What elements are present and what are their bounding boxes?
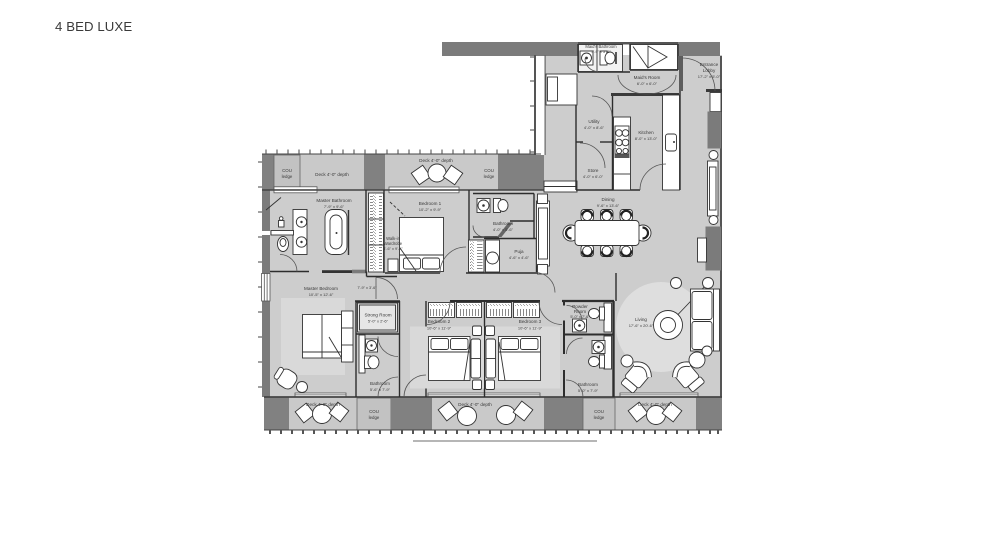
- svg-text:Entrance: Entrance: [700, 62, 719, 67]
- svg-text:Strong Room: Strong Room: [364, 313, 391, 318]
- svg-text:Kitchen: Kitchen: [638, 130, 654, 135]
- svg-text:4'-0" x 8'-6": 4'-0" x 8'-6": [584, 125, 605, 130]
- svg-text:5'-0" x 7'-6": 5'-0" x 7'-6": [570, 315, 590, 319]
- svg-text:Puja: Puja: [514, 249, 524, 254]
- svg-text:Maid's Room: Maid's Room: [634, 75, 661, 80]
- svg-text:COU: COU: [282, 168, 292, 173]
- svg-text:Master Bathroom: Master Bathroom: [316, 198, 351, 203]
- svg-text:Bedroom 3: Bedroom 3: [519, 319, 542, 324]
- svg-text:7'-9" x 3'-6": 7'-9" x 3'-6": [357, 286, 377, 290]
- svg-text:ledge: ledge: [594, 415, 605, 420]
- svg-text:COU: COU: [484, 168, 494, 173]
- svg-text:Lobby: Lobby: [703, 68, 716, 73]
- svg-text:Utility: Utility: [588, 119, 600, 124]
- svg-text:Master Bedroom: Master Bedroom: [304, 286, 338, 291]
- svg-text:Bathroom: Bathroom: [493, 221, 513, 226]
- svg-text:4'-6" x 9'-6": 4'-6" x 9'-6": [383, 247, 403, 251]
- svg-text:5'-0" x 7'-9": 5'-0" x 7'-9": [578, 388, 599, 393]
- svg-text:10'-6" x 11'-9": 10'-6" x 11'-9": [427, 326, 452, 331]
- svg-text:Wardrobe: Wardrobe: [384, 241, 403, 246]
- svg-text:6'-0" x 6'-0": 6'-0" x 6'-0": [637, 81, 658, 86]
- svg-text:ledge: ledge: [369, 415, 380, 420]
- svg-text:5'-0" x 2'-6": 5'-0" x 2'-6": [368, 319, 389, 324]
- svg-text:COU: COU: [594, 409, 604, 414]
- svg-text:4'-0" x 5'-6": 4'-0" x 5'-6": [493, 227, 514, 232]
- svg-text:Deck 4'-0" depth: Deck 4'-0" depth: [315, 172, 349, 177]
- svg-text:Bathroom: Bathroom: [578, 382, 598, 387]
- svg-text:Bedroom 1: Bedroom 1: [419, 201, 442, 206]
- svg-text:5'-6" x 7'-9": 5'-6" x 7'-9": [370, 387, 391, 392]
- svg-text:Room: Room: [574, 309, 586, 314]
- svg-text:Dining: Dining: [601, 197, 614, 202]
- svg-text:Store: Store: [588, 168, 599, 173]
- svg-text:Bedroom 2: Bedroom 2: [428, 319, 451, 324]
- svg-text:Deck 4'-0" depth: Deck 4'-0" depth: [638, 402, 672, 407]
- svg-text:Deck 4'-0" depth: Deck 4'-0" depth: [419, 158, 453, 163]
- svg-text:10'-2" x 9'-9": 10'-2" x 9'-9": [419, 207, 442, 212]
- svg-text:9'-6" x 13'-6": 9'-6" x 13'-6": [597, 203, 620, 208]
- svg-text:17'-2" x 5'-0": 17'-2" x 5'-0": [698, 74, 721, 79]
- svg-text:Maid's Bathroom: Maid's Bathroom: [585, 44, 617, 49]
- svg-text:4'-6" x 4'-6": 4'-6" x 4'-6": [509, 255, 530, 260]
- svg-text:7'-9" x 9'-6": 7'-9" x 9'-6": [324, 204, 345, 209]
- svg-text:ledge: ledge: [282, 174, 293, 179]
- svg-text:10'-5" x 12'-6": 10'-5" x 12'-6": [309, 292, 334, 297]
- svg-text:5'-9" x 5'-6": 5'-9" x 5'-6": [591, 50, 611, 54]
- svg-text:4 BED LUXE: 4 BED LUXE: [55, 19, 132, 34]
- svg-text:COU: COU: [369, 409, 379, 414]
- svg-text:10'-6" x 11'-9": 10'-6" x 11'-9": [518, 326, 543, 331]
- svg-text:Deck 4'-0" depth: Deck 4'-0" depth: [458, 402, 492, 407]
- svg-text:8'-0" x 13'-0": 8'-0" x 13'-0": [635, 136, 658, 141]
- svg-text:17'-6" x 20'-6": 17'-6" x 20'-6": [629, 323, 654, 328]
- svg-text:ledge: ledge: [484, 174, 495, 179]
- svg-text:4'-0" x 6'-0": 4'-0" x 6'-0": [583, 174, 604, 179]
- svg-text:Living: Living: [635, 317, 647, 322]
- svg-text:Deck 4'-0" depth: Deck 4'-0" depth: [306, 402, 340, 407]
- svg-text:Bathroom: Bathroom: [370, 381, 390, 386]
